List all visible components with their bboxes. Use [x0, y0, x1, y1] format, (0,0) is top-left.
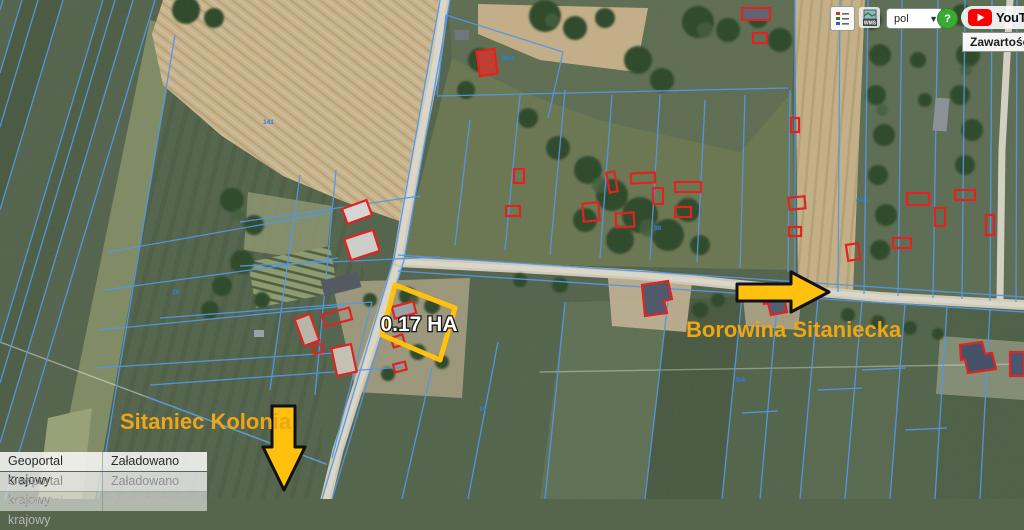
map-contents-tooltip: Zawartość m — [962, 32, 1024, 52]
svg-text:WMS: WMS — [863, 20, 876, 26]
layer-source: Geoportal krajowy — [0, 492, 103, 511]
aerial-map-canvas[interactable]: 96/1 141 98 26 14 5/4 84/1 0.17 HA Borow… — [0, 0, 1024, 499]
wms-button[interactable]: WMS — [859, 7, 880, 28]
layer-status-table: Geoportal krajowy Załadowano Geoportal k… — [0, 452, 207, 511]
area-label: 0.17 HA — [380, 313, 457, 336]
youtube-play-icon — [968, 9, 992, 26]
place-label-borowina: Borowina Sitaniecka — [686, 317, 902, 342]
language-select-value: pol — [894, 13, 909, 25]
layer-status: Załadowano — [103, 492, 207, 511]
wms-icon: WMS — [861, 9, 879, 27]
parcel-label: 141 — [263, 119, 274, 126]
layer-status: Załadowano — [103, 452, 207, 471]
layer-source: Geoportal krajowy — [0, 472, 103, 491]
status-row: Geoportal krajowy Załadowano — [0, 452, 207, 472]
parcel-label: 26 — [172, 289, 180, 296]
layer-status: Załadowano — [103, 472, 207, 491]
parcel-label: 96/1 — [502, 55, 515, 62]
place-label-sitaniec: Sitaniec Kolonia — [120, 409, 292, 434]
parcel-label: 84/1 — [856, 197, 869, 204]
legend-icon — [835, 11, 850, 26]
youtube-label: YouTube — [996, 10, 1024, 25]
language-select[interactable]: pol ▼ — [886, 8, 943, 29]
layer-source: Geoportal krajowy — [0, 452, 103, 471]
status-row: Geoportal krajowy Załadowano — [0, 472, 207, 492]
legend-button[interactable] — [830, 6, 855, 31]
help-button[interactable]: ? — [937, 8, 958, 29]
youtube-button[interactable]: YouTube — [961, 6, 1024, 29]
parcel-label: 5/4 — [736, 377, 745, 384]
parcel-label: 98 — [654, 225, 662, 232]
status-row: Geoportal krajowy Załadowano — [0, 492, 207, 511]
parcel-label: 14 — [479, 406, 487, 413]
help-label: ? — [944, 13, 951, 25]
